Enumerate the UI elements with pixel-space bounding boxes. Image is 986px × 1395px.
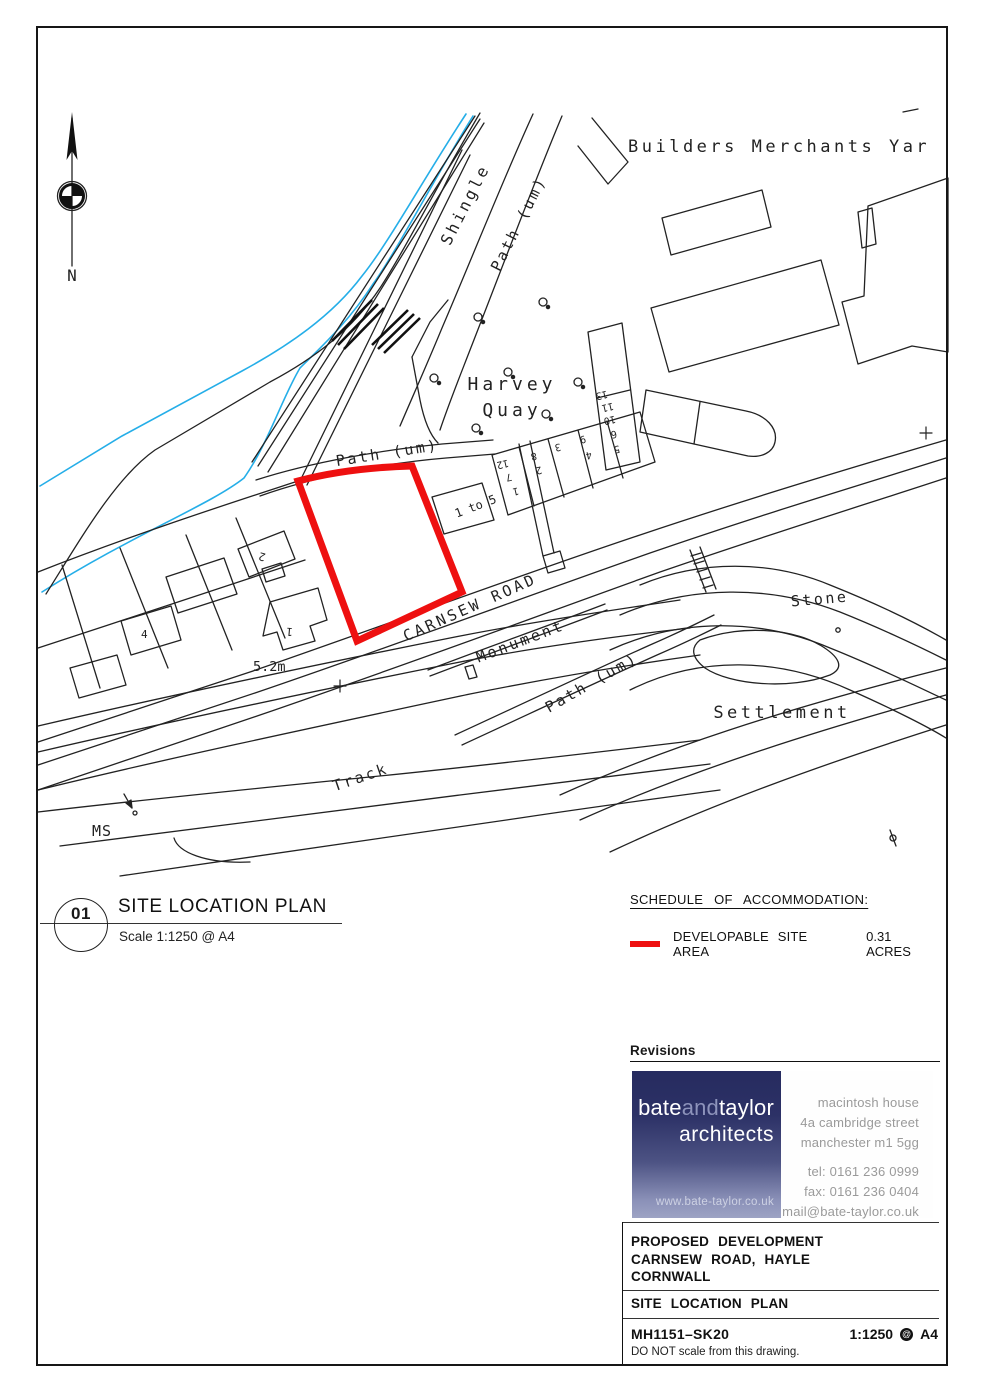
project-line: PROPOSED DEVELOPMENT [631, 1233, 823, 1251]
house-number: 4 [141, 628, 148, 641]
project-line: CARNSEW ROAD, HAYLE [631, 1251, 823, 1269]
revisions-block: Revisions [630, 1043, 940, 1062]
schedule-legend: SCHEDULE OF ACCOMMODATION: DEVELOPABLE S… [630, 892, 942, 959]
label-harvey: Harvey [467, 374, 556, 395]
address-line: manchester m1 5gg [781, 1133, 919, 1153]
plot-number: 5 [612, 442, 620, 454]
plot-number: 12 [495, 457, 509, 470]
contact-line: tel: 0161 236 0999 [781, 1162, 919, 1182]
legend-item: DEVELOPABLE SITE AREA 0.31 ACRES [630, 929, 942, 959]
logo-panel: bateandtaylor architects www.bate-taylor… [632, 1071, 781, 1218]
drawing-scale: 1:1250 @ A4 [850, 1326, 939, 1342]
project-line: CORNWALL [631, 1268, 823, 1286]
title-block-rule [623, 1290, 939, 1291]
plot-number: 9 [578, 432, 586, 444]
address-line: 4a cambridge street [781, 1113, 919, 1133]
brand-taylor: taylor [719, 1095, 774, 1120]
label-one-to-five: 1 to 5 [453, 492, 498, 521]
label-quay: Quay [482, 400, 541, 421]
plot-number: 7 [504, 470, 512, 482]
paper-size: A4 [920, 1326, 938, 1342]
page-title: SITE LOCATION PLAN [118, 896, 327, 918]
logo-contact-panel: macintosh house 4a cambridge street manc… [781, 1071, 933, 1218]
scale-value: 1:1250 [850, 1326, 894, 1342]
drawing-number-circle: 01 [54, 898, 108, 952]
label-monument: Monument [474, 616, 567, 666]
drawing-number-label: 01 [55, 904, 107, 924]
legend-item-value: 0.31 ACRES [866, 929, 942, 959]
plot-number: 11 [600, 400, 614, 413]
architect-logo-card: bateandtaylor architects www.bate-taylor… [632, 1071, 933, 1218]
logo-website: www.bate-taylor.co.uk [656, 1196, 774, 1208]
plot-number: 8 [529, 449, 537, 461]
drawing-reference: MH1151–SK20 [631, 1326, 729, 1342]
label-path-um-upper: Path (um) [487, 173, 550, 274]
contact-line: fax: 0161 236 0404 [781, 1182, 919, 1202]
label-stone: Stone [790, 588, 849, 611]
shoreline-water [40, 114, 473, 592]
title-block-left-border [622, 1222, 623, 1364]
plot-number: 13 [594, 388, 608, 401]
brand-and: and [682, 1095, 719, 1120]
project-title: PROPOSED DEVELOPMENT CARNSEW ROAD, HAYLE… [631, 1233, 823, 1286]
revisions-rule [630, 1061, 940, 1062]
address-line: macintosh house [781, 1093, 919, 1113]
north-label: N [67, 266, 77, 285]
plot-number: 10 [602, 413, 616, 426]
map-labels: Builders Merchants Yar Shingle Path (um)… [92, 137, 930, 840]
logo-subtitle: architects [679, 1123, 774, 1147]
title-block-rule [623, 1318, 939, 1319]
site-area-swatch [630, 941, 660, 947]
do-not-scale-note: DO NOT scale from this drawing. [631, 1346, 800, 1358]
label-ms: MS [92, 822, 112, 840]
brand-bate: bate [638, 1095, 682, 1120]
page-scale-note: Scale 1:1250 @ A4 [119, 929, 235, 944]
label-settlement: Settlement [713, 703, 850, 723]
logo-brand-name: bateandtaylor [638, 1095, 774, 1121]
legend-heading: SCHEDULE OF ACCOMMODATION: [630, 892, 942, 907]
at-symbol-icon: @ [900, 1328, 913, 1341]
label-track: Track [330, 759, 390, 795]
title-block-rule [623, 1222, 939, 1223]
north-arrow: N [58, 112, 87, 285]
house-number: 2 [257, 549, 267, 563]
label-path-um-lower: Path (um) [542, 649, 641, 716]
plot-number: 3 [553, 440, 561, 452]
drawing-name: SITE LOCATION PLAN [631, 1296, 788, 1311]
drawing-sheet: N [0, 0, 986, 1395]
legend-item-label: DEVELOPABLE SITE AREA [673, 929, 849, 959]
revisions-heading: Revisions [630, 1043, 940, 1058]
label-builders-merchants: Builders Merchants Yar [628, 137, 930, 157]
house-number: 1 [286, 625, 294, 639]
label-spot-height: 5.2m [253, 659, 286, 675]
plot-number: 6 [609, 427, 617, 439]
contact-line: mail@bate-taylor.co.uk [781, 1202, 919, 1222]
plot-number: 2 [534, 463, 542, 475]
plot-number: 1 [511, 484, 519, 496]
